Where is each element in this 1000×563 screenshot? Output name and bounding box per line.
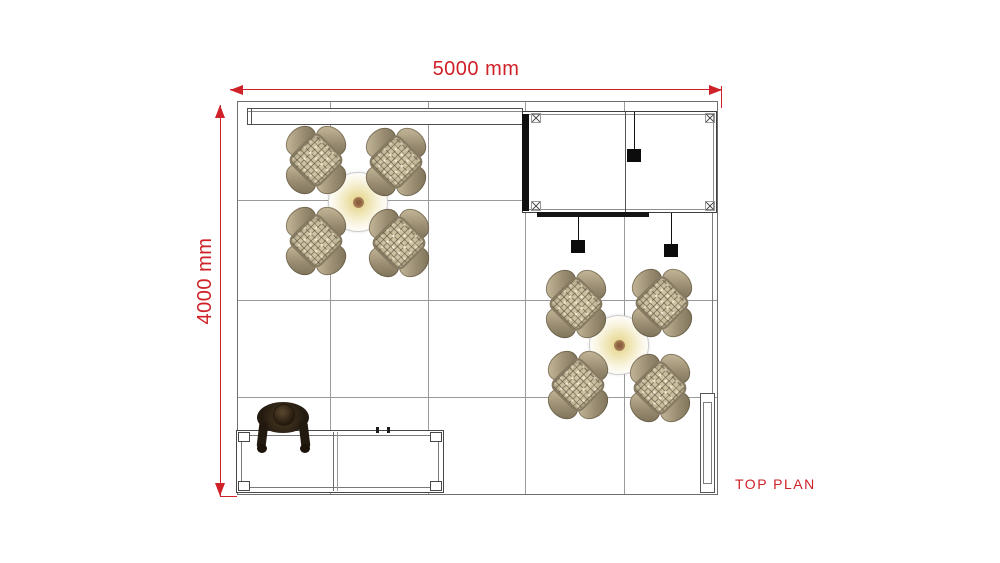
spotlight-icon [664, 244, 678, 257]
canopy-shadow-bar-vertical [522, 114, 529, 211]
wicker-chair [545, 273, 607, 335]
canopy-frame [522, 111, 717, 213]
canopy-divider [625, 112, 626, 212]
wicker-chair [547, 354, 609, 416]
person-figure [255, 400, 312, 450]
corner-joint-icon [705, 201, 715, 211]
horizontal-dimension-line [230, 89, 722, 90]
dimension-arrow-up-icon [215, 105, 225, 118]
horizontal-dimension-label: 5000 mm [376, 58, 576, 81]
wicker-chair [629, 357, 691, 419]
header-band-endcap [251, 109, 252, 124]
counter-handle [387, 427, 390, 433]
wicker-chair [365, 131, 427, 193]
counter-corner-bracket [238, 481, 250, 491]
view-title: TOP PLAN [735, 476, 816, 492]
wicker-chair [285, 210, 347, 272]
table-center-dot [353, 197, 364, 208]
person-hand [300, 444, 310, 453]
dimension-arrow-left-icon [230, 85, 243, 95]
horizontal-dimension-extension [721, 86, 722, 108]
side-wall-panel [700, 393, 715, 493]
counter-divider [333, 432, 334, 491]
spotlight-stem [634, 112, 635, 149]
person-head [274, 405, 294, 425]
person-hand [257, 444, 267, 453]
corner-joint-icon [531, 201, 541, 211]
floor-plan [237, 101, 718, 495]
spotlight-stem [578, 213, 579, 240]
top-plan-drawing: 5000 mm 4000 mm TOP PLAN [0, 0, 1000, 563]
table-center-dot [614, 340, 625, 351]
header-band [247, 108, 523, 125]
spotlight-icon [571, 240, 585, 253]
counter-corner-bracket [430, 432, 442, 442]
counter-divider [337, 432, 338, 491]
wicker-chair [631, 272, 693, 334]
side-wall-panel-inner [703, 402, 712, 484]
vertical-dimension-line [220, 105, 221, 496]
canopy-frame-inner [525, 114, 714, 210]
right-wall-line [712, 213, 713, 393]
corner-joint-icon [705, 113, 715, 123]
wicker-chair [368, 212, 430, 274]
counter-handle [376, 427, 379, 433]
counter-corner-bracket [238, 432, 250, 442]
vertical-dimension-label: 4000 mm [194, 181, 216, 381]
vertical-dimension-extension [220, 496, 237, 497]
header-band-inner-line [248, 111, 522, 112]
counter-corner-bracket [430, 481, 442, 491]
dimension-arrow-down-icon [215, 483, 225, 496]
spotlight-stem [671, 213, 672, 244]
corner-joint-icon [531, 113, 541, 123]
wicker-chair [285, 129, 347, 191]
spotlight-icon [627, 149, 641, 162]
canopy-shadow-bar-horizontal [537, 212, 649, 217]
